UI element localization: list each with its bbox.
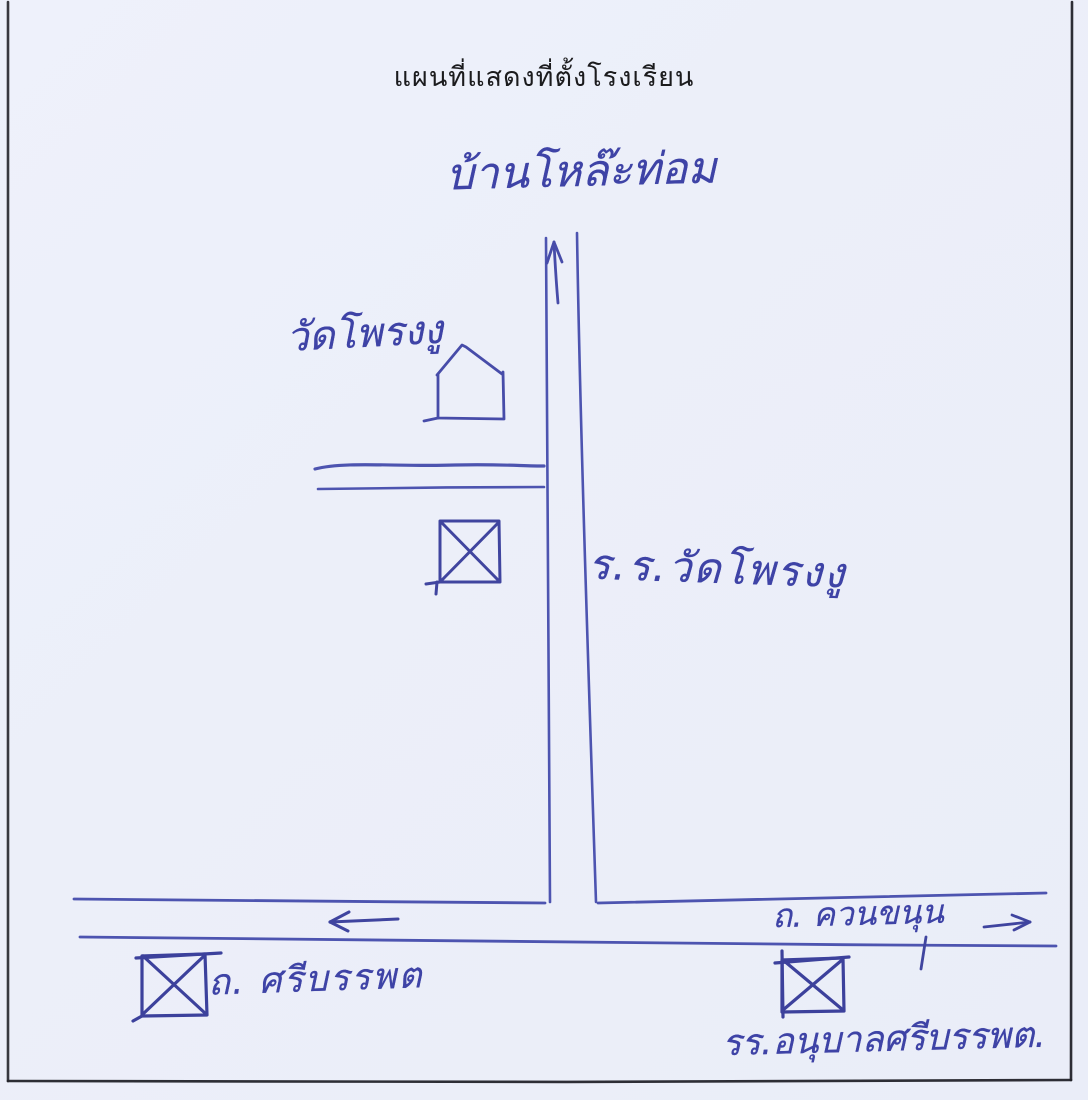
pointer-tick [921, 937, 926, 969]
road-label-khuan-khanun: ถ. ควนขนุน [772, 895, 945, 932]
road-label-si-banphot: ถ. ศรีบรรพต [207, 958, 424, 1001]
anuban-school-label: รร.อนุบาลศรีบรรพต. [722, 1018, 1047, 1062]
map-title: แผนที่แสดงที่ตั้งโรงเรียน [394, 64, 695, 91]
arrow-right-icon [984, 915, 1030, 930]
village-label: บ้านโหล๊ะท่อม [445, 146, 716, 197]
side-road [315, 465, 544, 489]
temple-label: วัดโพรงงู [285, 310, 444, 358]
crossed-box-marker-temple [426, 521, 500, 594]
arrow-left-icon [330, 912, 398, 931]
school-label: ร.ร.วัดโพรงงู [587, 544, 847, 595]
house-outline-icon [424, 345, 504, 421]
crossed-box-marker-right [775, 951, 849, 1017]
arrow-up-icon [547, 242, 562, 303]
scanned-map-page: แผนที่แสดงที่ตั้งโรงเรียน บ้านโหล๊ะท่อม … [0, 0, 1088, 1100]
